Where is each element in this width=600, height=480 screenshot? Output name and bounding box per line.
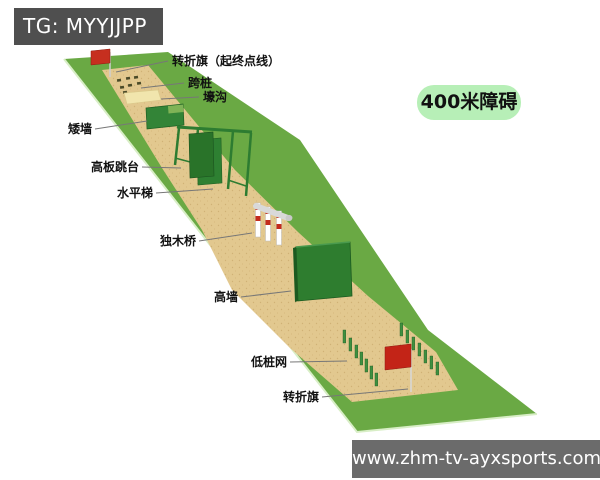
label-stepping-stakes: 跨桩 — [188, 75, 212, 90]
diagram-stage: 转折旗（起终点线） 跨桩 壕沟 矮墙 高板跳台 水平梯 独木桥 高墙 低桩网 转… — [0, 0, 600, 480]
obstacle-course-diagram: 转折旗（起终点线） 跨桩 壕沟 矮墙 高板跳台 水平梯 独木桥 高墙 低桩网 转… — [0, 0, 600, 480]
label-turn-flag: 转折旗 — [283, 389, 319, 404]
turn-flag-cloth — [385, 344, 411, 370]
website-watermark: www.zhm-tv-ayxsports.com — [352, 440, 600, 478]
course-title-badge: 400米障碍 — [417, 85, 521, 120]
label-low-stake-net: 低桩网 — [250, 354, 287, 369]
high-wall-obstacle — [293, 242, 352, 302]
label-low-wall: 矮墙 — [67, 121, 92, 136]
high-board-platform-obstacle — [189, 132, 222, 185]
start-flag-cloth — [91, 49, 110, 65]
telegram-watermark: TG: MYYJJPP — [14, 8, 163, 45]
low-wall-obstacle — [146, 104, 184, 129]
label-high-wall: 高墙 — [214, 289, 238, 304]
label-trench: 壕沟 — [203, 89, 227, 104]
label-balance-beam: 独木桥 — [159, 233, 197, 248]
label-high-board-platform: 高板跳台 — [91, 159, 139, 174]
label-start-finish-turn-flag: 转折旗（起终点线） — [172, 53, 280, 68]
label-horizontal-ladder: 水平梯 — [117, 185, 153, 200]
